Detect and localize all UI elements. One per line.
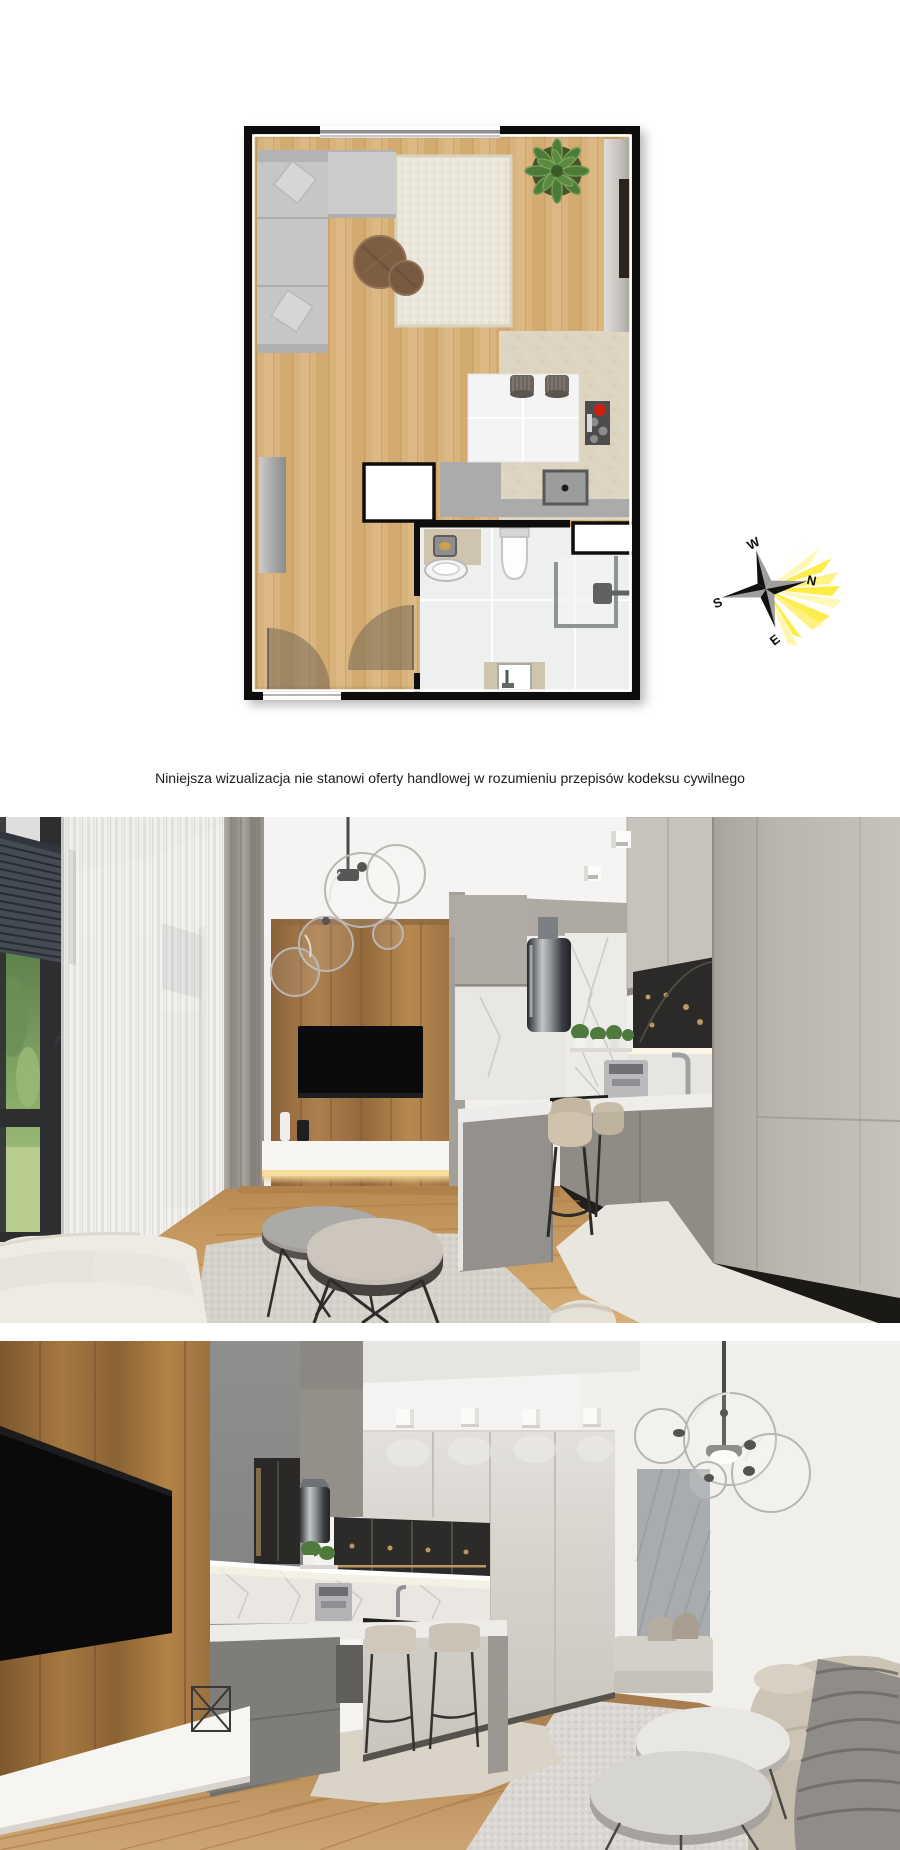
svg-text:E: E — [767, 631, 783, 648]
svg-text:W: W — [744, 534, 763, 553]
svg-text:S: S — [711, 594, 725, 611]
svg-text:N: N — [805, 572, 817, 589]
